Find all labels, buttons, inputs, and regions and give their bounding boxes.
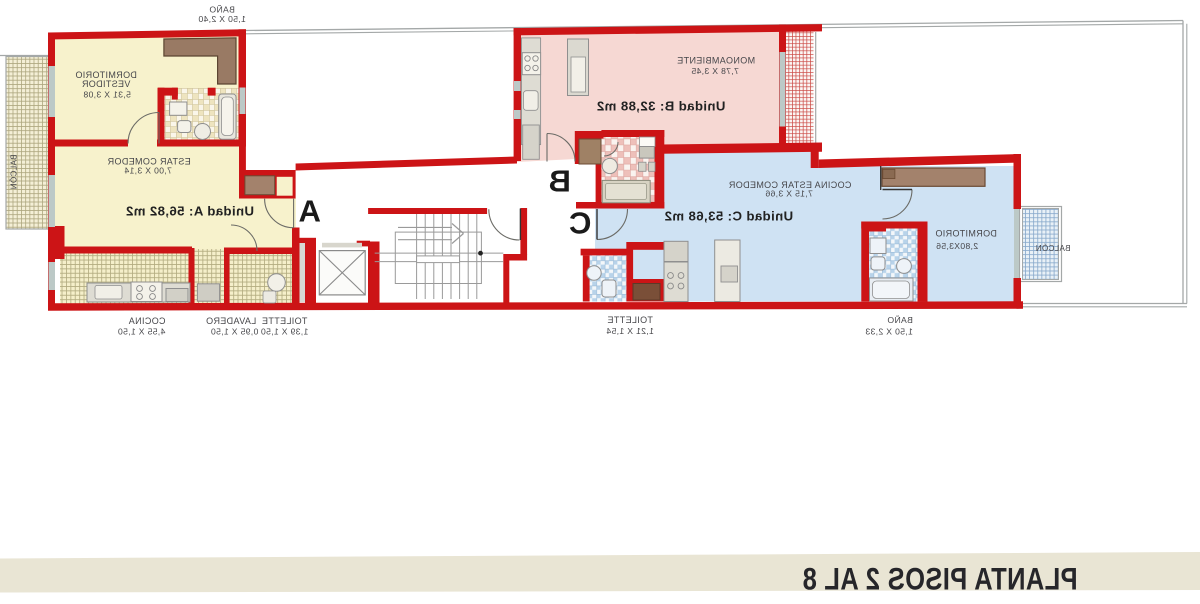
svg-text:B: B [548,164,571,199]
svg-text:C: C [569,206,592,241]
svg-text:7,78 X 3,45: 7,78 X 3,45 [691,66,739,76]
svg-text:7,15 X 3,66: 7,15 X 3,66 [765,188,813,198]
svg-text:BALCÓN: BALCÓN [10,155,19,190]
svg-text:MONOAMBIENTE: MONOAMBIENTE [677,56,755,66]
svg-text:TOILETTE: TOILETTE [607,315,653,325]
svg-text:DORMITORIO: DORMITORIO [935,229,997,239]
svg-text:TOILETTE: TOILETTE [262,316,308,326]
svg-text:COCINA: COCINA [128,316,165,326]
svg-text:4,55 X 1,50: 4,55 X 1,50 [118,327,166,337]
svg-text:1,21 X 1,54: 1,21 X 1,54 [606,326,654,336]
svg-text:1,50 X 2,33: 1,50 X 2,33 [865,327,913,337]
svg-text:Unidad C: 53,68 m2: Unidad C: 53,68 m2 [664,209,793,224]
svg-text:5,31 X 3,08: 5,31 X 3,08 [83,90,131,100]
svg-text:A: A [298,194,321,229]
svg-text:2,80X3,56: 2,80X3,56 [936,241,978,251]
svg-text:1,39 X 1,50: 1,39 X 1,50 [261,327,309,337]
svg-text:LAVADERO: LAVADERO [206,316,256,326]
svg-text:0,95 X 1,50: 0,95 X 1,50 [211,327,259,337]
svg-text:1,50 X 2,40: 1,50 X 2,40 [198,14,246,24]
svg-text:BALCÓN: BALCÓN [1036,244,1071,253]
svg-text:PLANTA PISOS 2 AL 8: PLANTA PISOS 2 AL 8 [802,562,1077,597]
svg-text:VESTIDOR: VESTIDOR [81,79,130,89]
svg-text:7,00 X 3,14: 7,00 X 3,14 [124,166,172,176]
svg-text:Unidad B: 32,88 m2: Unidad B: 32,88 m2 [597,99,726,114]
svg-text:Unidad A: 56,82 m2: Unidad A: 56,82 m2 [126,204,254,219]
svg-text:BAÑO: BAÑO [887,315,913,325]
svg-text:BAÑO: BAÑO [209,5,235,15]
